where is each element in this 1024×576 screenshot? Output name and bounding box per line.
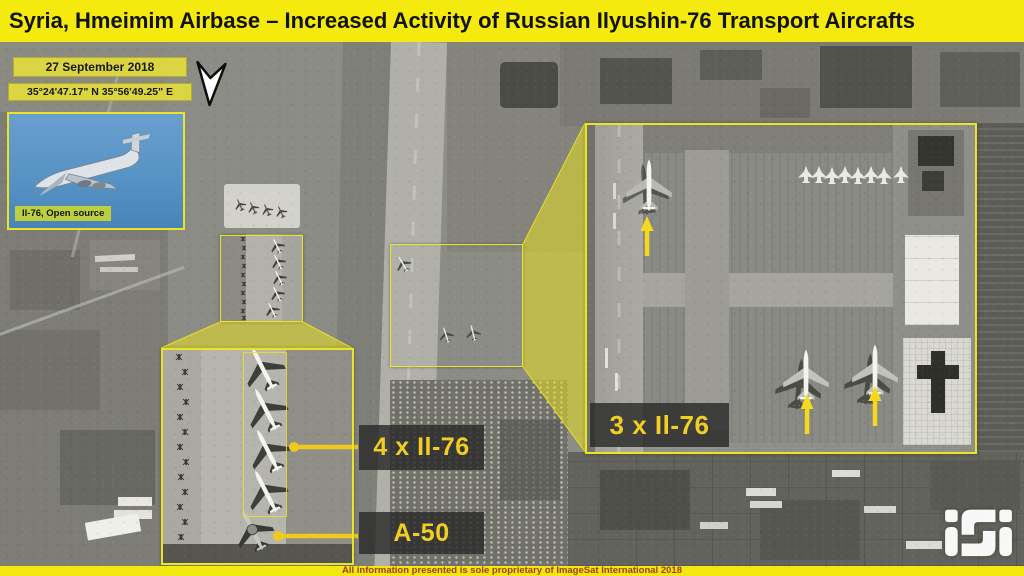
coordinates: 35°24'47.17" N 35°56'49.25" E xyxy=(27,86,173,98)
proprietary-notice: All information presented is sole propri… xyxy=(342,566,682,576)
coordinates-box: 35°24'47.17" N 35°56'49.25" E xyxy=(8,83,192,101)
label-4x-il76: 4 x Il-76 xyxy=(359,425,484,470)
capture-date: 27 September 2018 xyxy=(46,60,155,74)
terrain-patch xyxy=(60,430,155,505)
il76-photo-inset: Il-76, Open source xyxy=(7,112,185,230)
greenhouse xyxy=(864,506,896,513)
terrain-patch xyxy=(0,330,100,410)
label-a50-text: A-50 xyxy=(393,519,449,548)
greenhouse xyxy=(746,488,776,496)
title-banner: Syria, Hmeimim Airbase – Increased Activ… xyxy=(0,0,1024,42)
isi-logo xyxy=(944,496,1014,558)
photo-caption: Il-76, Open source xyxy=(15,206,111,221)
aircraft-highlight-box xyxy=(243,352,287,517)
apron xyxy=(224,184,300,228)
tree-grove xyxy=(500,62,558,108)
terrain-patch xyxy=(700,50,762,80)
terrain-right-fields xyxy=(975,123,1024,452)
intelligence-report: 4 x Il-76 A-50 3 x Il-76 Syria, Hmeimim … xyxy=(0,0,1024,576)
terrain-patch xyxy=(600,58,672,104)
greenhouse xyxy=(832,470,860,477)
terrain-patch xyxy=(820,46,912,108)
warehouse xyxy=(118,497,152,506)
label-3x-il76: 3 x Il-76 xyxy=(590,403,729,447)
callout-source-box-middle xyxy=(390,244,523,367)
label-a50: A-50 xyxy=(359,512,484,554)
footer-strip: All information presented is sole propri… xyxy=(0,566,1024,576)
callout-source-box-left xyxy=(220,235,303,322)
label-4x-il76-text: 4 x Il-76 xyxy=(373,433,469,462)
terrain-patch xyxy=(760,88,810,118)
greenhouse xyxy=(700,522,728,529)
terrain-patch xyxy=(500,420,560,500)
terrain-patch xyxy=(940,52,1020,107)
greenhouse xyxy=(906,541,942,549)
label-3x-il76-text: 3 x Il-76 xyxy=(610,410,710,441)
terrain-patch xyxy=(0,42,168,112)
warehouse xyxy=(85,513,141,540)
report-title: Syria, Hmeimim Airbase – Increased Activ… xyxy=(9,8,915,34)
terrain-patch xyxy=(600,470,690,530)
terrain-patch xyxy=(10,250,80,310)
terrain-topright xyxy=(560,42,1024,126)
greenhouse xyxy=(750,501,782,508)
terrain-patch xyxy=(90,240,160,290)
date-box: 27 September 2018 xyxy=(13,57,187,77)
terrain-patch xyxy=(760,500,860,560)
greenhouse xyxy=(100,267,138,272)
